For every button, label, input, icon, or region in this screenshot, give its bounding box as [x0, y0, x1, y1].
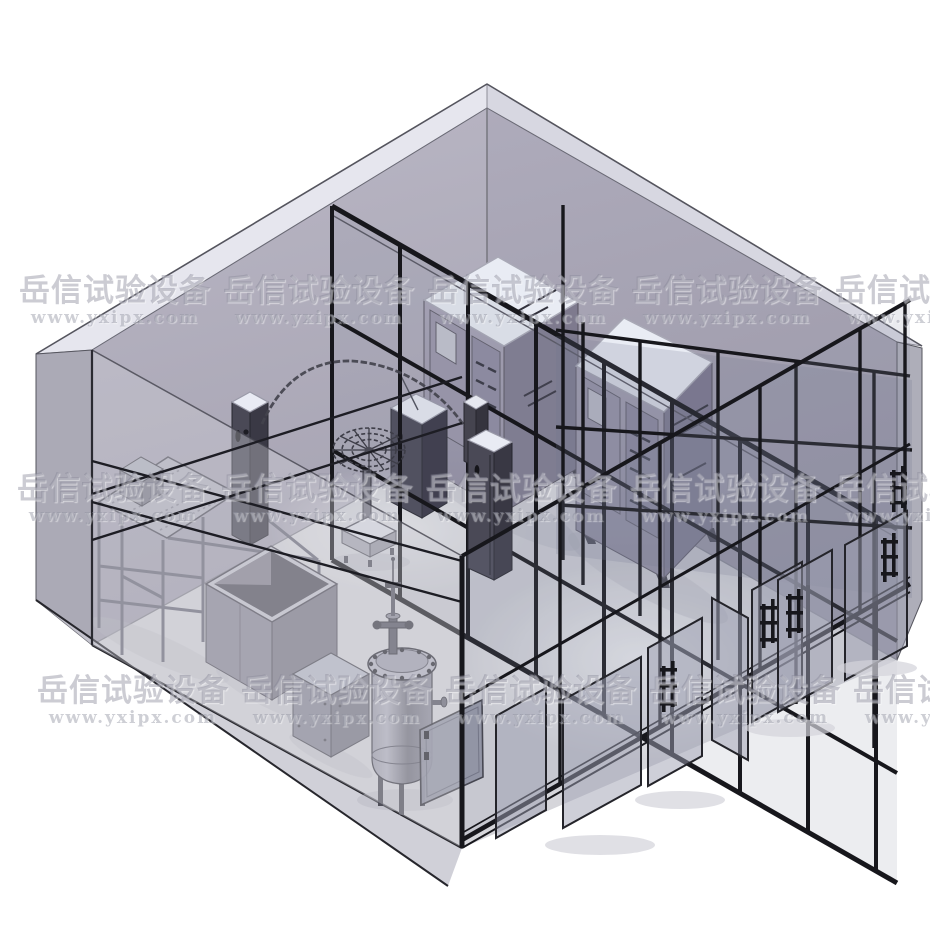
door-handle	[760, 599, 777, 648]
outer-left-wall-band	[36, 350, 92, 645]
cad-render-canvas: 岳信试验设备www.yxipx.com岳信试验设备www.yxipx.com岳信…	[0, 0, 930, 930]
door-pane	[712, 598, 748, 760]
door-handle	[881, 533, 898, 582]
door-handle	[786, 589, 803, 638]
scene-svg	[0, 0, 930, 930]
door-handle	[660, 661, 677, 712]
left-column-knob	[243, 429, 248, 434]
column-indicator	[475, 465, 480, 475]
